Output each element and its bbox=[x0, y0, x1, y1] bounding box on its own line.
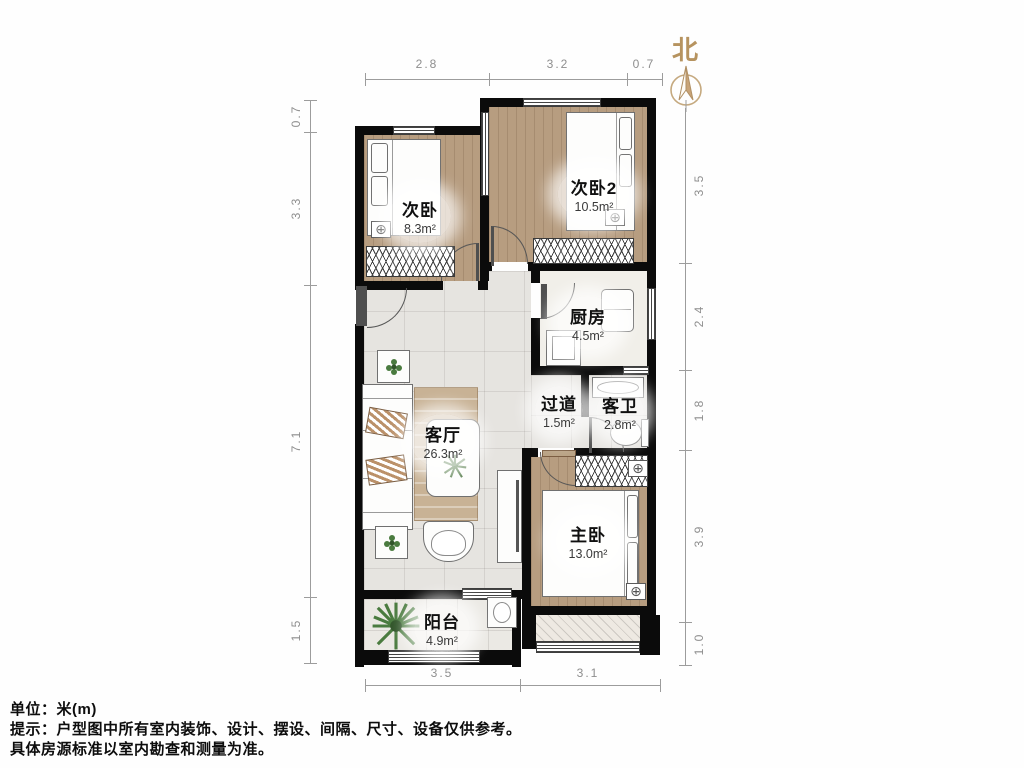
wall-segment bbox=[531, 271, 540, 283]
sofa-line bbox=[363, 398, 412, 399]
wall-segment bbox=[647, 98, 656, 615]
dim-label: 1.0 bbox=[692, 633, 706, 656]
dim-label: 3.5 bbox=[431, 666, 454, 680]
dim-tick bbox=[679, 263, 692, 264]
room-area: 1.5m² bbox=[543, 416, 575, 430]
wall-segment bbox=[522, 457, 531, 615]
dim-line-bottom bbox=[365, 685, 660, 686]
dim-line-left bbox=[310, 100, 311, 663]
pillow bbox=[371, 176, 388, 206]
wall-segment bbox=[355, 590, 462, 599]
ceiling-lamp-icon: ⊕ bbox=[628, 460, 648, 477]
room-name: 厨房 bbox=[570, 303, 606, 328]
pillow bbox=[371, 143, 388, 173]
wardrobe-bedroom2 bbox=[366, 246, 455, 277]
room-area: 26.3m² bbox=[424, 447, 463, 461]
dim-label: 0.7 bbox=[289, 105, 303, 128]
washing-machine bbox=[487, 597, 517, 628]
room-name: 阳台 bbox=[424, 608, 460, 633]
note-tip-line1: 提示：户型图中所有室内装饰、设计、摆设、间隔、尺寸、设备仅供参考。 bbox=[10, 718, 522, 739]
room-area: 2.8m² bbox=[604, 418, 636, 432]
room-label-living: 客厅 26.3m² bbox=[411, 414, 476, 468]
note-tip-line2: 具体房源标准以室内勘查和测量为准。 bbox=[10, 738, 274, 759]
dim-label: 1.5 bbox=[289, 619, 303, 642]
room-area: 4.5m² bbox=[572, 329, 604, 343]
dim-tick bbox=[304, 597, 317, 598]
window-partition bbox=[481, 112, 489, 196]
sofa-cushion bbox=[365, 454, 407, 485]
room-label-balcony: 阳台 4.9m² bbox=[414, 604, 470, 652]
room-label-kitchen: 厨房 4.5m² bbox=[557, 296, 619, 350]
dim-label: 0.7 bbox=[633, 57, 656, 71]
wall-segment bbox=[522, 615, 536, 649]
dim-label: 3.5 bbox=[692, 174, 706, 197]
ceiling-lamp-icon: ⊕ bbox=[371, 221, 391, 238]
dim-line-top bbox=[365, 79, 662, 80]
sofa-line bbox=[363, 512, 412, 513]
dim-tick bbox=[304, 285, 317, 286]
dim-label: 2.4 bbox=[692, 305, 706, 328]
room-area: 10.5m² bbox=[575, 200, 614, 214]
dim-tick bbox=[627, 73, 628, 86]
dim-line-right bbox=[685, 108, 686, 666]
dim-label: 2.8 bbox=[416, 57, 439, 71]
dim-label: 1.8 bbox=[692, 399, 706, 422]
room-label-master: 主卧 13.0m² bbox=[556, 514, 621, 568]
washing-machine-door bbox=[493, 602, 511, 623]
dim-tick bbox=[365, 73, 366, 86]
room-label-bathroom: 客卫 2.8m² bbox=[596, 388, 644, 436]
room-name: 过道 bbox=[541, 390, 577, 415]
bay-window-area bbox=[536, 615, 640, 642]
window-bedroom2-top bbox=[393, 126, 435, 135]
dim-tick bbox=[304, 663, 317, 664]
flower-icon bbox=[384, 357, 404, 377]
dim-tick bbox=[304, 132, 317, 133]
window-bedroom3-top bbox=[523, 98, 601, 107]
dim-tick bbox=[679, 450, 692, 451]
room-name: 次卧2 bbox=[571, 174, 617, 199]
compass-icon bbox=[662, 60, 710, 112]
room-area: 4.9m² bbox=[426, 634, 458, 648]
room-name: 客卫 bbox=[602, 392, 638, 417]
window-bay bbox=[536, 641, 640, 653]
flower-icon bbox=[382, 533, 402, 553]
dim-label: 3.2 bbox=[547, 57, 570, 71]
room-label-bedroom3: 次卧2 10.5m² bbox=[558, 167, 630, 221]
bed-line bbox=[624, 491, 625, 596]
entry-door-leaf bbox=[356, 286, 367, 326]
wall-segment bbox=[478, 281, 488, 290]
pillow bbox=[627, 542, 638, 585]
dim-tick bbox=[520, 679, 521, 692]
dim-tick bbox=[489, 73, 490, 86]
dim-tick bbox=[660, 679, 661, 692]
dim-tick bbox=[679, 622, 692, 623]
toilet-tank bbox=[641, 419, 649, 447]
pillow bbox=[627, 495, 638, 538]
room-area: 8.3m² bbox=[404, 222, 436, 236]
room-label-bedroom2: 次卧 8.3m² bbox=[389, 189, 451, 243]
room-name: 客厅 bbox=[425, 421, 461, 446]
dim-label: 3.3 bbox=[289, 197, 303, 220]
wardrobe-bedroom3 bbox=[533, 238, 634, 264]
flower-pot bbox=[377, 350, 410, 383]
ceiling-lamp-icon: ⊕ bbox=[626, 583, 646, 600]
note-unit: 单位：米(m) bbox=[10, 698, 97, 719]
room-label-corridor: 过道 1.5m² bbox=[535, 386, 583, 434]
dim-tick bbox=[365, 679, 366, 692]
room-name: 主卧 bbox=[570, 521, 606, 546]
dim-tick bbox=[679, 665, 692, 666]
room-area: 13.0m² bbox=[569, 547, 608, 561]
pillow bbox=[619, 117, 632, 150]
window-kitchen-right bbox=[647, 288, 656, 340]
wall-segment bbox=[355, 126, 364, 288]
flower-pot bbox=[375, 526, 408, 559]
tv bbox=[516, 480, 519, 552]
wall-segment bbox=[640, 615, 660, 655]
dim-tick bbox=[304, 100, 317, 101]
dim-tick bbox=[679, 370, 692, 371]
wall-segment bbox=[522, 448, 538, 457]
dim-label: 3.1 bbox=[577, 666, 600, 680]
armchair-cushion bbox=[431, 530, 466, 556]
window-bath-top bbox=[623, 366, 649, 375]
floorplan-canvas: ⊕ ⊕ ⊕ ⊕ bbox=[0, 0, 1024, 768]
dim-label: 3.9 bbox=[692, 525, 706, 548]
room-name: 次卧 bbox=[402, 196, 438, 221]
dim-label: 7.1 bbox=[289, 430, 303, 453]
wall-segment bbox=[522, 606, 656, 615]
